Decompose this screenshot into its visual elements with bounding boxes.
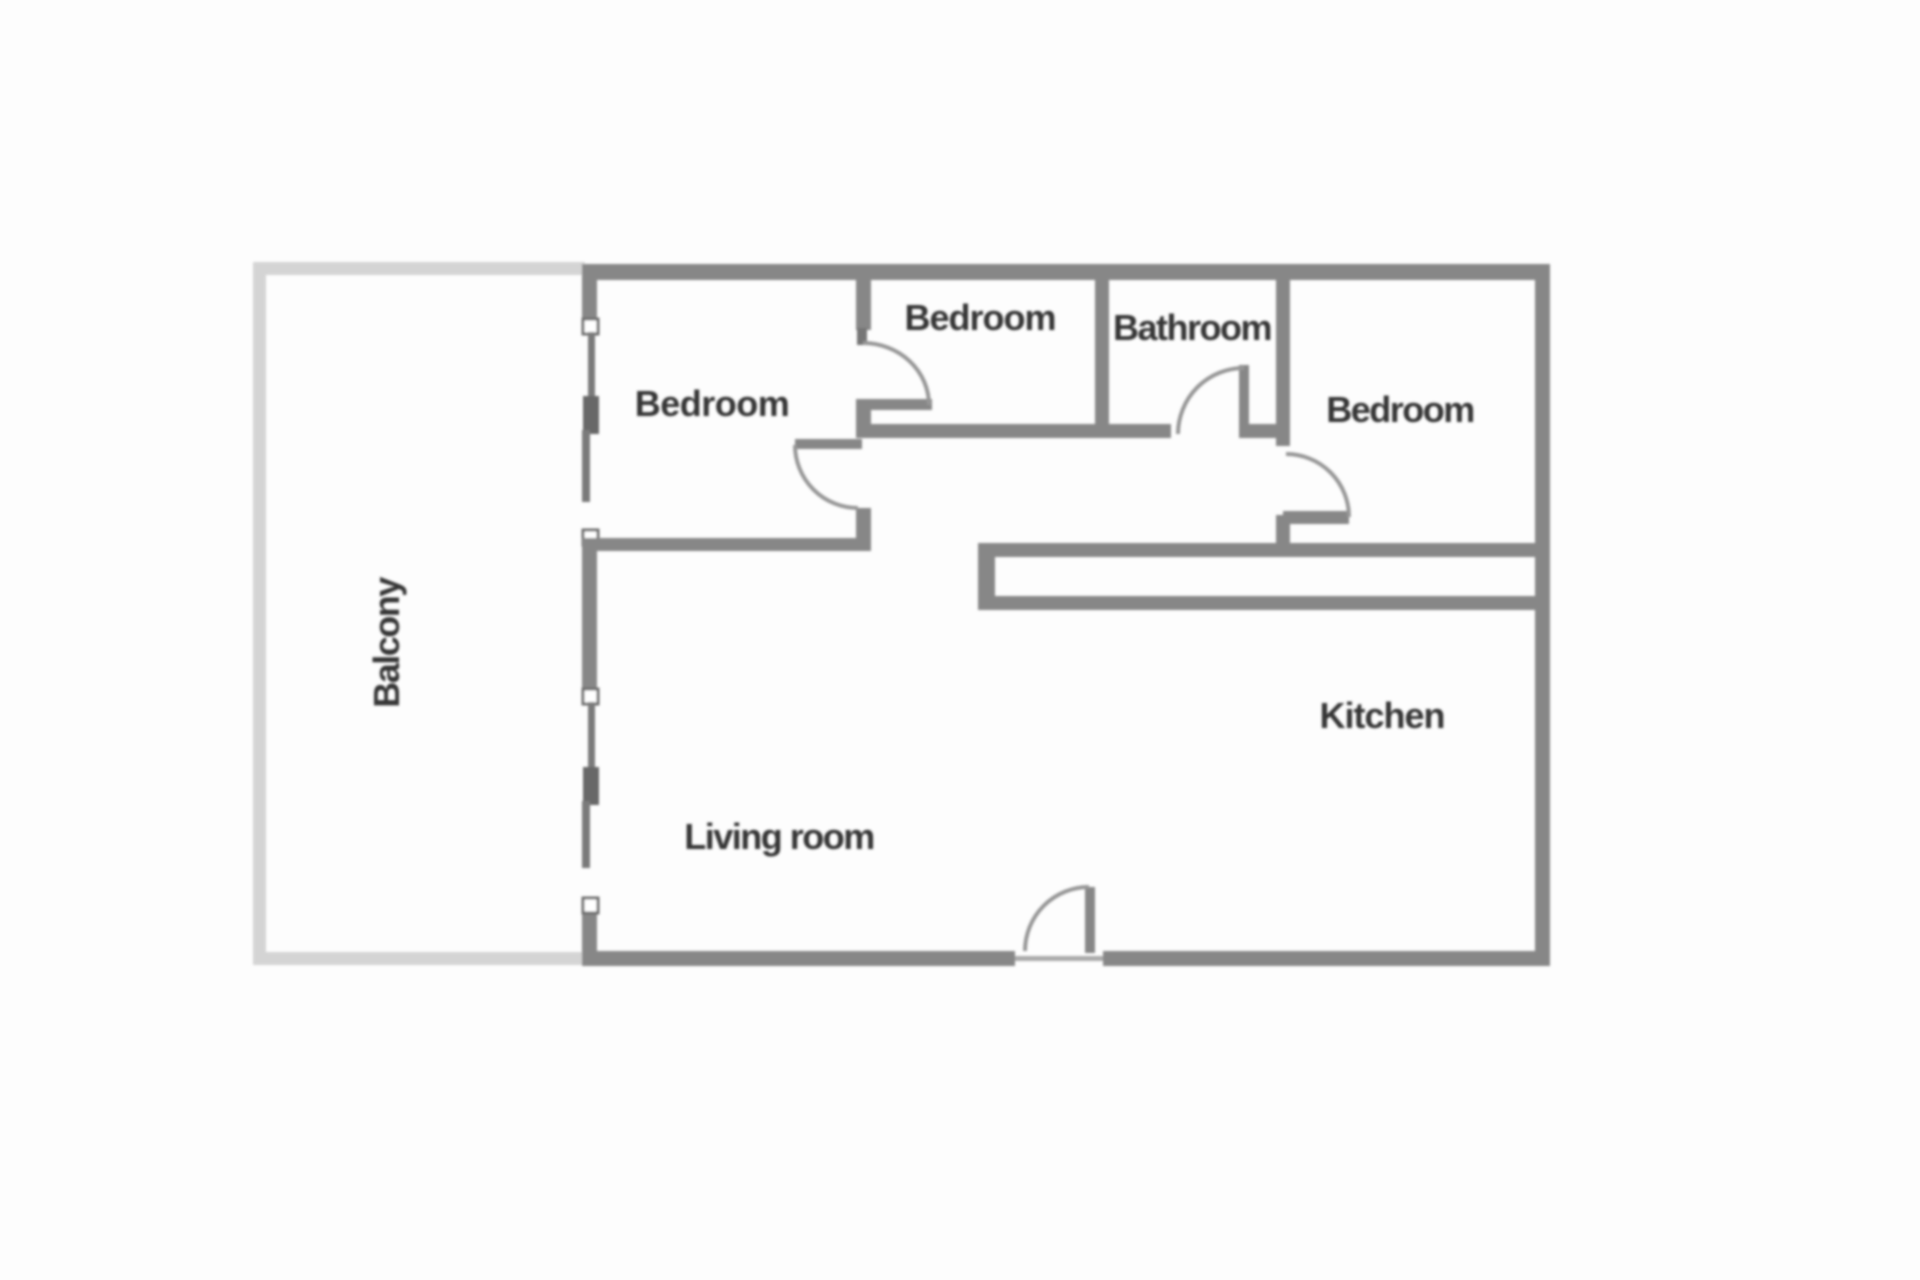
- svg-text:Bedroom: Bedroom: [904, 297, 1055, 338]
- svg-text:Bedroom: Bedroom: [1326, 389, 1474, 430]
- svg-text:Living room: Living room: [684, 816, 874, 857]
- svg-text:Kitchen: Kitchen: [1319, 695, 1444, 736]
- svg-text:Bathroom: Bathroom: [1113, 307, 1271, 348]
- svg-text:Bedroom: Bedroom: [635, 383, 790, 424]
- svg-text:Balcony: Balcony: [366, 577, 407, 708]
